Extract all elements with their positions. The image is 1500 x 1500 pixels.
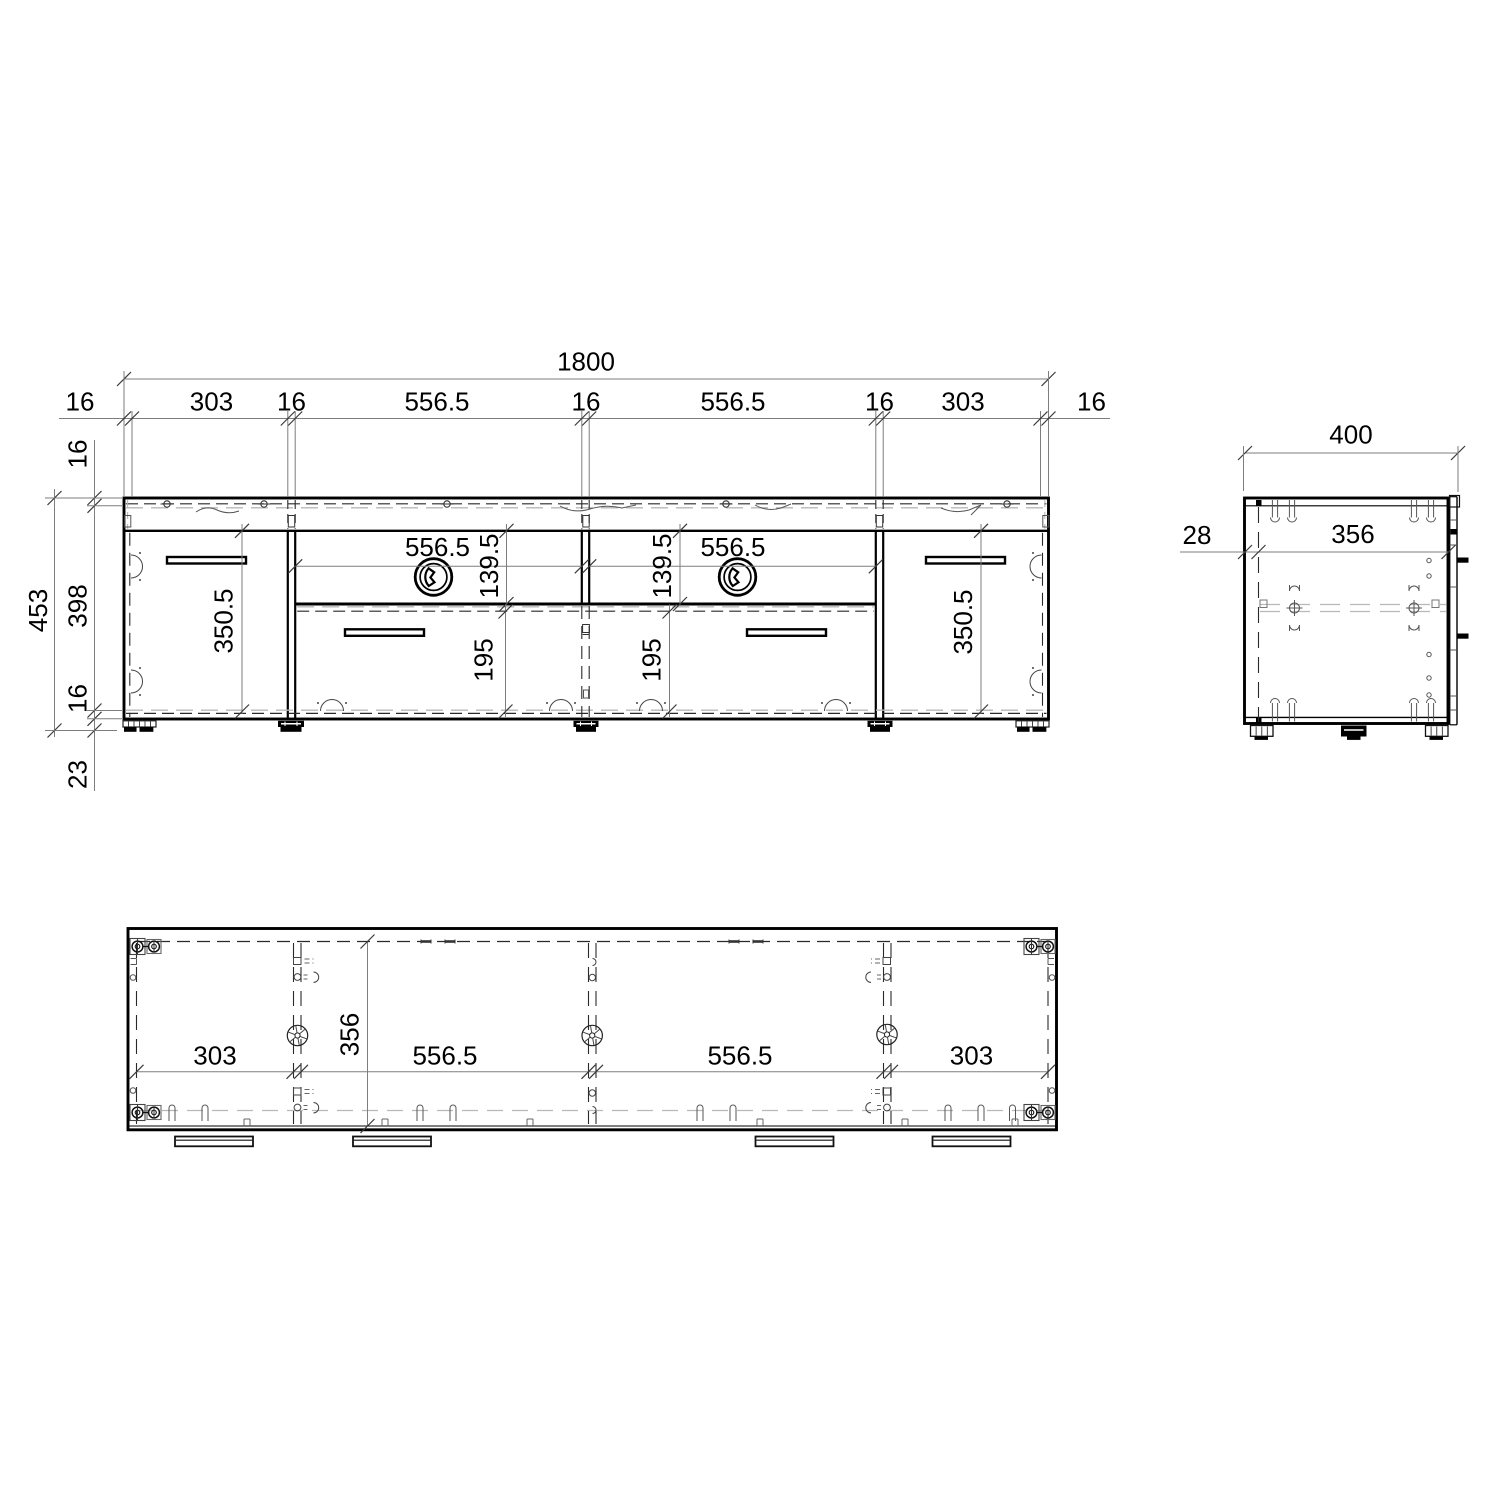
svg-text:1800: 1800 [557, 347, 615, 377]
svg-text:303: 303 [190, 387, 233, 417]
svg-text:195: 195 [469, 638, 499, 681]
svg-text:453: 453 [23, 589, 53, 632]
svg-text:303: 303 [193, 1041, 236, 1071]
svg-text:16: 16 [63, 684, 93, 713]
svg-text:556.5: 556.5 [412, 1041, 477, 1071]
svg-text:556.5: 556.5 [707, 1041, 772, 1071]
svg-text:23: 23 [63, 760, 93, 789]
svg-text:356: 356 [335, 1013, 365, 1056]
svg-text:28: 28 [1183, 520, 1212, 550]
svg-text:556.5: 556.5 [700, 532, 765, 562]
svg-text:400: 400 [1329, 420, 1372, 450]
svg-text:139.5: 139.5 [474, 533, 504, 598]
svg-text:556.5: 556.5 [405, 532, 470, 562]
svg-text:16: 16 [66, 387, 95, 417]
svg-text:350.5: 350.5 [209, 588, 239, 653]
svg-text:195: 195 [637, 638, 667, 681]
svg-text:139.5: 139.5 [647, 533, 677, 598]
svg-text:16: 16 [865, 387, 894, 417]
svg-text:303: 303 [941, 387, 984, 417]
svg-text:356: 356 [1331, 519, 1374, 549]
svg-text:16: 16 [63, 440, 93, 469]
svg-text:556.5: 556.5 [404, 387, 469, 417]
svg-text:16: 16 [277, 387, 306, 417]
svg-text:303: 303 [950, 1041, 993, 1071]
svg-text:16: 16 [1077, 387, 1106, 417]
svg-text:556.5: 556.5 [700, 387, 765, 417]
svg-text:16: 16 [572, 387, 601, 417]
svg-text:350.5: 350.5 [948, 589, 978, 654]
svg-text:398: 398 [63, 584, 93, 627]
